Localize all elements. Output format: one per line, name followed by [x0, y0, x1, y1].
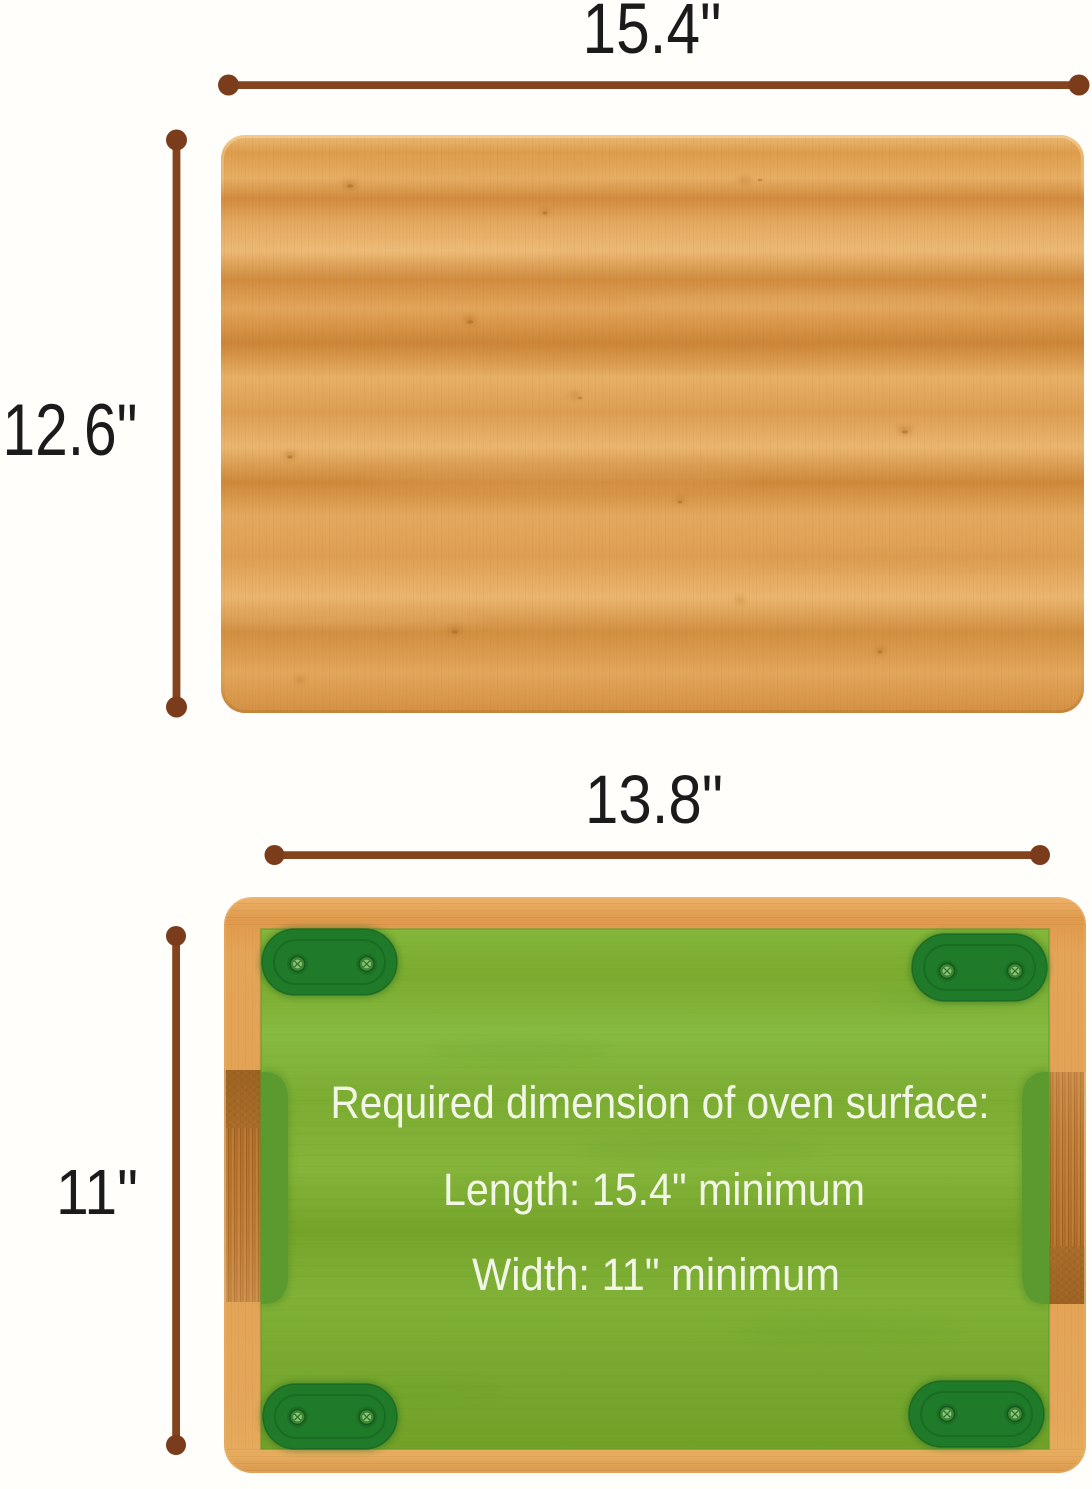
svg-text:11": 11"	[56, 1156, 138, 1228]
svg-text:15.4": 15.4"	[583, 0, 722, 69]
svg-text:Required dimension of oven sur: Required dimension of oven surface:	[331, 1077, 990, 1128]
svg-text:Width: 11" minimum: Width: 11" minimum	[472, 1249, 840, 1300]
svg-text:13.8": 13.8"	[585, 761, 723, 838]
svg-text:12.6": 12.6"	[3, 390, 138, 471]
svg-text:Length: 15.4" minimum: Length: 15.4" minimum	[443, 1164, 865, 1215]
